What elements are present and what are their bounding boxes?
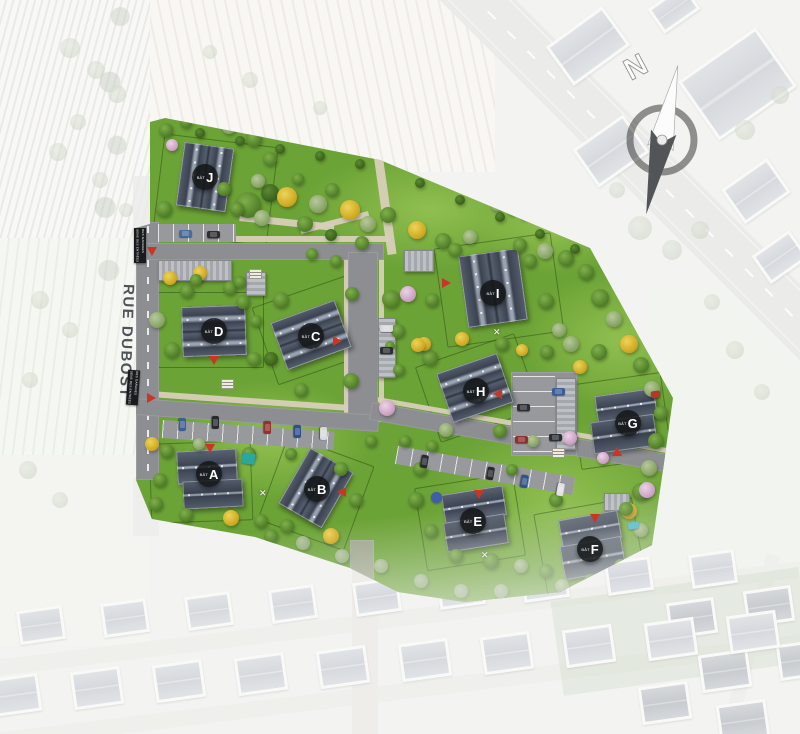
building-badge-I: BÂTI	[480, 280, 506, 306]
badge-letter: J	[206, 170, 213, 185]
site-plan-map: ✕✕✕ BÂTABÂTBBÂTCBÂTDBÂTEBÂTFBÂTGBÂTHBÂTI…	[0, 0, 800, 734]
building-badge-F: BÂTF	[577, 536, 603, 562]
badge-letter: C	[311, 329, 320, 344]
building-badge-A: BÂTA	[196, 461, 222, 487]
building-badge-J: BÂTJ	[192, 164, 218, 190]
badge-letter: F	[591, 542, 599, 557]
badge-letter: B	[317, 482, 326, 497]
badge-letter: E	[473, 514, 482, 529]
building-badge-D: BÂTD	[201, 318, 227, 344]
badge-letter: H	[476, 384, 485, 399]
badge-prefix: BÂT	[464, 519, 472, 524]
badge-prefix: BÂT	[200, 472, 208, 477]
badge-letter: I	[496, 286, 500, 301]
badge-prefix: BÂT	[467, 389, 475, 394]
badge-prefix: BÂT	[486, 291, 494, 296]
building-badge-G: BÂTG	[615, 410, 641, 436]
badge-prefix: BÂT	[197, 175, 205, 180]
badge-prefix: BÂT	[618, 421, 626, 426]
building-badge-B: BÂTB	[304, 476, 330, 502]
north-label: N	[618, 48, 653, 87]
badge-prefix: BÂT	[302, 334, 310, 339]
north-compass: N	[612, 40, 712, 218]
badge-prefix: BÂT	[205, 329, 213, 334]
building-badge-C: BÂTC	[298, 323, 324, 349]
compass-needle	[633, 63, 690, 217]
building-badge-E: BÂTE	[460, 508, 486, 534]
badge-letter: A	[209, 467, 218, 482]
badge-prefix: BÂT	[308, 487, 316, 492]
badge-letter: D	[214, 324, 223, 339]
badge-prefix: BÂT	[581, 547, 589, 552]
badge-letter: G	[628, 416, 638, 431]
building-badge-H: BÂTH	[463, 378, 489, 404]
